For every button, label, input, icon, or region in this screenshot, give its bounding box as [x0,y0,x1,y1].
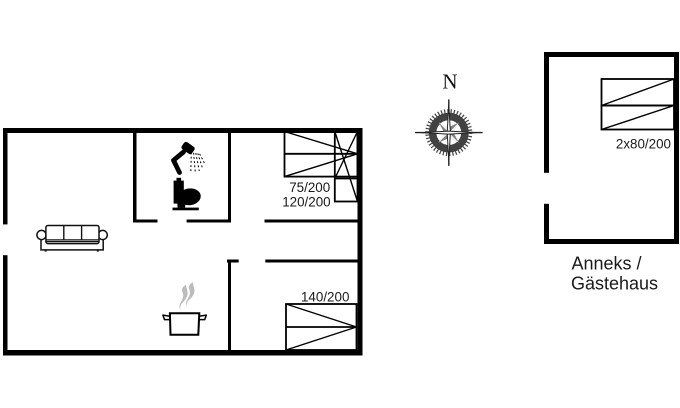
svg-text:Anneks /: Anneks / [572,254,642,274]
svg-text:Gästehaus: Gästehaus [571,273,658,293]
svg-text:120/200: 120/200 [282,195,330,210]
svg-text:N: N [442,70,457,94]
svg-text:75/200: 75/200 [289,180,330,195]
svg-text:140/200: 140/200 [301,290,349,305]
svg-text:2x80/200: 2x80/200 [616,136,671,151]
